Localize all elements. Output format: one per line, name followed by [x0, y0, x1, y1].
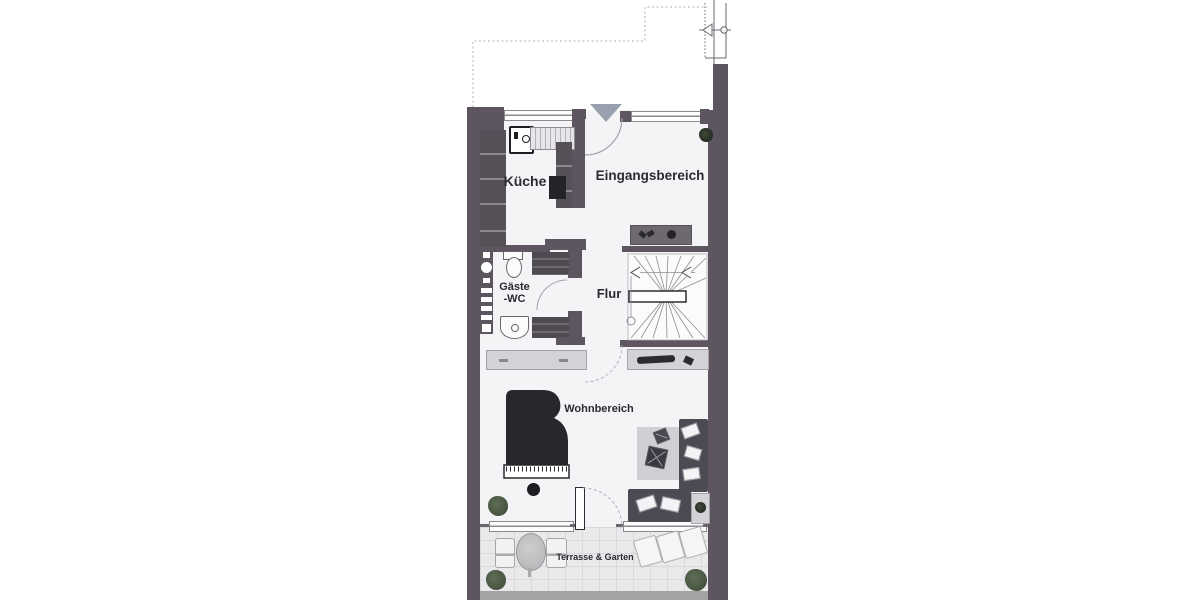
room-label-living: Wohnbereich [564, 403, 634, 415]
garden-edge-band [480, 591, 708, 600]
washbasin-drain [511, 324, 519, 332]
decor-object [559, 359, 568, 362]
stairs-top-wall [622, 246, 708, 252]
entrance-plant-icon [699, 128, 713, 142]
outer-wall-right-top [713, 64, 728, 112]
room-label-entrance: Eingangsbereich [588, 169, 712, 184]
kitchen-window [504, 110, 575, 121]
decor-object [499, 359, 508, 362]
sofa-cushion [680, 422, 700, 439]
corner-table [691, 493, 710, 524]
terrace-wall-seg4 [703, 524, 708, 527]
glass-block [483, 252, 490, 258]
kitchen-cabinets-left-lower [480, 207, 506, 247]
glass-block [481, 315, 492, 320]
shoe-icon [646, 230, 655, 238]
faucet-icon [514, 132, 518, 139]
wc-closet-lower [532, 317, 569, 338]
entrance-wall-end-block [700, 109, 709, 124]
glass-block [481, 288, 492, 293]
plant-icon [695, 502, 706, 513]
section-arrow-icon [703, 24, 712, 36]
wc-closet-upper [532, 252, 569, 275]
living-top-wall-left [556, 337, 585, 345]
entrance-window [631, 111, 704, 122]
soundbar-icon [637, 355, 675, 364]
section-marker-icon [699, 0, 731, 64]
living-window-left [489, 521, 574, 532]
glass-block-round [481, 262, 492, 273]
kitchen-cabinets-left [480, 130, 506, 207]
kitchen-corner-wall [480, 107, 504, 130]
entrance-arrow-icon [590, 104, 622, 122]
terrace-table-icon [516, 533, 546, 571]
living-plant-icon [488, 496, 508, 516]
shoe-icon [638, 230, 647, 238]
section-circle-icon [721, 27, 727, 33]
room-label-guest-wc: Gäste -WC [492, 281, 537, 305]
sofa-cushion [660, 496, 681, 513]
decor-object [683, 355, 694, 365]
garden-plant-icon [685, 569, 707, 591]
toilet-icon [506, 257, 522, 278]
glass-block [482, 324, 491, 332]
garden-plant-icon [486, 570, 506, 590]
sink-drain [522, 135, 530, 143]
glass-block [481, 306, 492, 311]
living-sideboard-top [486, 350, 587, 370]
hallway-sideboard [630, 225, 692, 245]
bowl-icon [667, 230, 676, 239]
guest-wc-line1: Gäste [492, 281, 537, 293]
guest-wc-line2: -WC [492, 293, 537, 305]
terrace-door-leaf [575, 487, 585, 530]
floor-plan-page: Küche Eingangsbereich Gäste -WC Flur Woh… [0, 0, 1200, 600]
rug [637, 427, 680, 480]
piano-stool-icon [527, 483, 540, 496]
sofa-cushion [635, 494, 657, 512]
sofa-bottom [628, 489, 691, 522]
washbasin-icon [500, 316, 529, 339]
glass-block [481, 297, 492, 302]
parasol-stem [528, 568, 531, 577]
outer-wall-left [467, 107, 480, 600]
room-label-kitchen: Küche [495, 174, 555, 189]
glass-block [483, 278, 490, 283]
kitchen-bottom-wall [545, 239, 586, 250]
living-sideboard-right [627, 349, 709, 370]
sofa-cushion [682, 467, 701, 481]
sofa-cushion [684, 445, 703, 461]
hallway-left-wall-upper [568, 250, 582, 278]
room-label-hallway: Flur [584, 287, 634, 301]
roof-outline [473, 7, 707, 107]
room-label-terrace: Terrasse & Garten [555, 553, 635, 563]
sofa-right [679, 419, 708, 492]
living-top-wall-right [620, 340, 708, 347]
terrace-chair-icon [495, 538, 515, 568]
